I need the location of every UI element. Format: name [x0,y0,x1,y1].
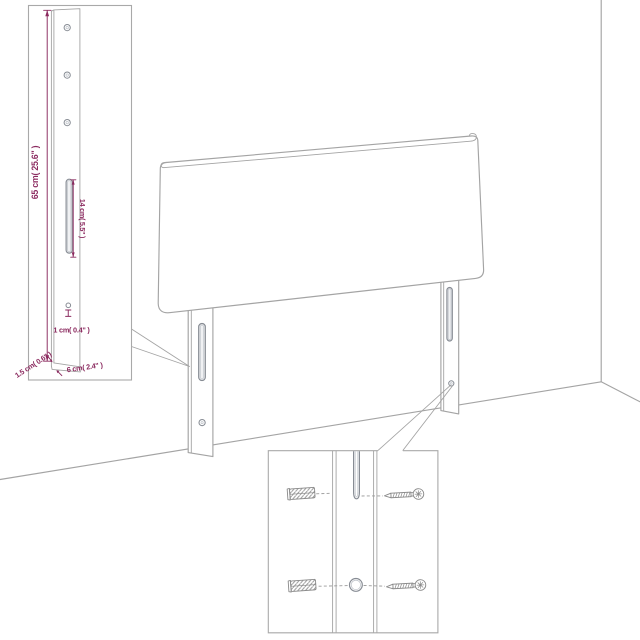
headboard-leg-left [188,298,213,457]
keyhole-slot-icon [66,179,72,253]
label-hole-offset: 1 cm( 0.4" ) [53,326,90,335]
screw-hole-icon [64,72,70,78]
mounting-hole-icon [199,420,205,426]
wall-plug-icon [287,487,315,500]
label-leg-height: 65 cm( 25.6" ) [30,145,40,199]
alignment-dash-line [316,493,331,494]
product-diagram: 65 cm( 25.6" ) 14 cm( 5.5" ) 1 cm( 0.4" … [0,0,640,640]
callout-line [132,329,190,367]
small-hole-icon [66,303,71,308]
floor-line-right [601,382,640,402]
headboard-assembly-drawing: 65 cm( 25.6" ) 14 cm( 5.5" ) 1 cm( 0.4" … [0,0,640,640]
inset-mounting-detail [268,451,438,633]
label-slot-length: 14 cm( 5.5" ) [78,199,87,239]
headboard-panel [158,134,483,313]
screw-hole-icon [64,120,70,126]
screw-hole-icon [64,25,70,31]
inset-leg-detail: 65 cm( 25.6" ) 14 cm( 5.5" ) 1 cm( 0.4" … [13,6,131,381]
headboard-leg-right [441,271,459,414]
keyhole-slot-icon [447,288,452,342]
wall-plug-icon [288,579,316,592]
mounting-hole-icon [449,381,454,386]
keyhole-slot-icon [199,324,206,381]
